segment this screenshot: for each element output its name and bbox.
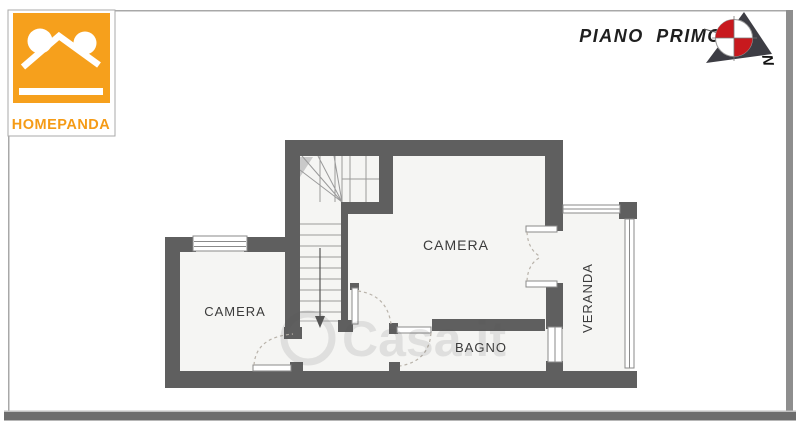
window-bagno-veranda xyxy=(548,327,562,362)
homepanda-logo-icon xyxy=(13,13,110,103)
room-label-veranda: VERANDA xyxy=(580,263,595,333)
room-label-camera-left: CAMERA xyxy=(204,304,266,319)
veranda-glazing-top xyxy=(563,205,620,213)
window-camera-left xyxy=(193,236,247,251)
room-label-camera-main: CAMERA xyxy=(423,237,489,253)
watermark-text: Casa.it xyxy=(342,311,506,367)
floorplan-page: HOMEPANDA PIANO PRIMO N xyxy=(0,0,800,424)
plan-title: PIANO PRIMO xyxy=(579,26,723,46)
homepanda-wordmark: HOMEPANDA xyxy=(12,117,111,133)
veranda-glazing-right xyxy=(625,219,634,368)
floorplan-canvas: HOMEPANDA PIANO PRIMO N xyxy=(0,0,800,424)
north-label: N xyxy=(758,53,777,68)
logo-box: HOMEPANDA xyxy=(8,10,115,136)
